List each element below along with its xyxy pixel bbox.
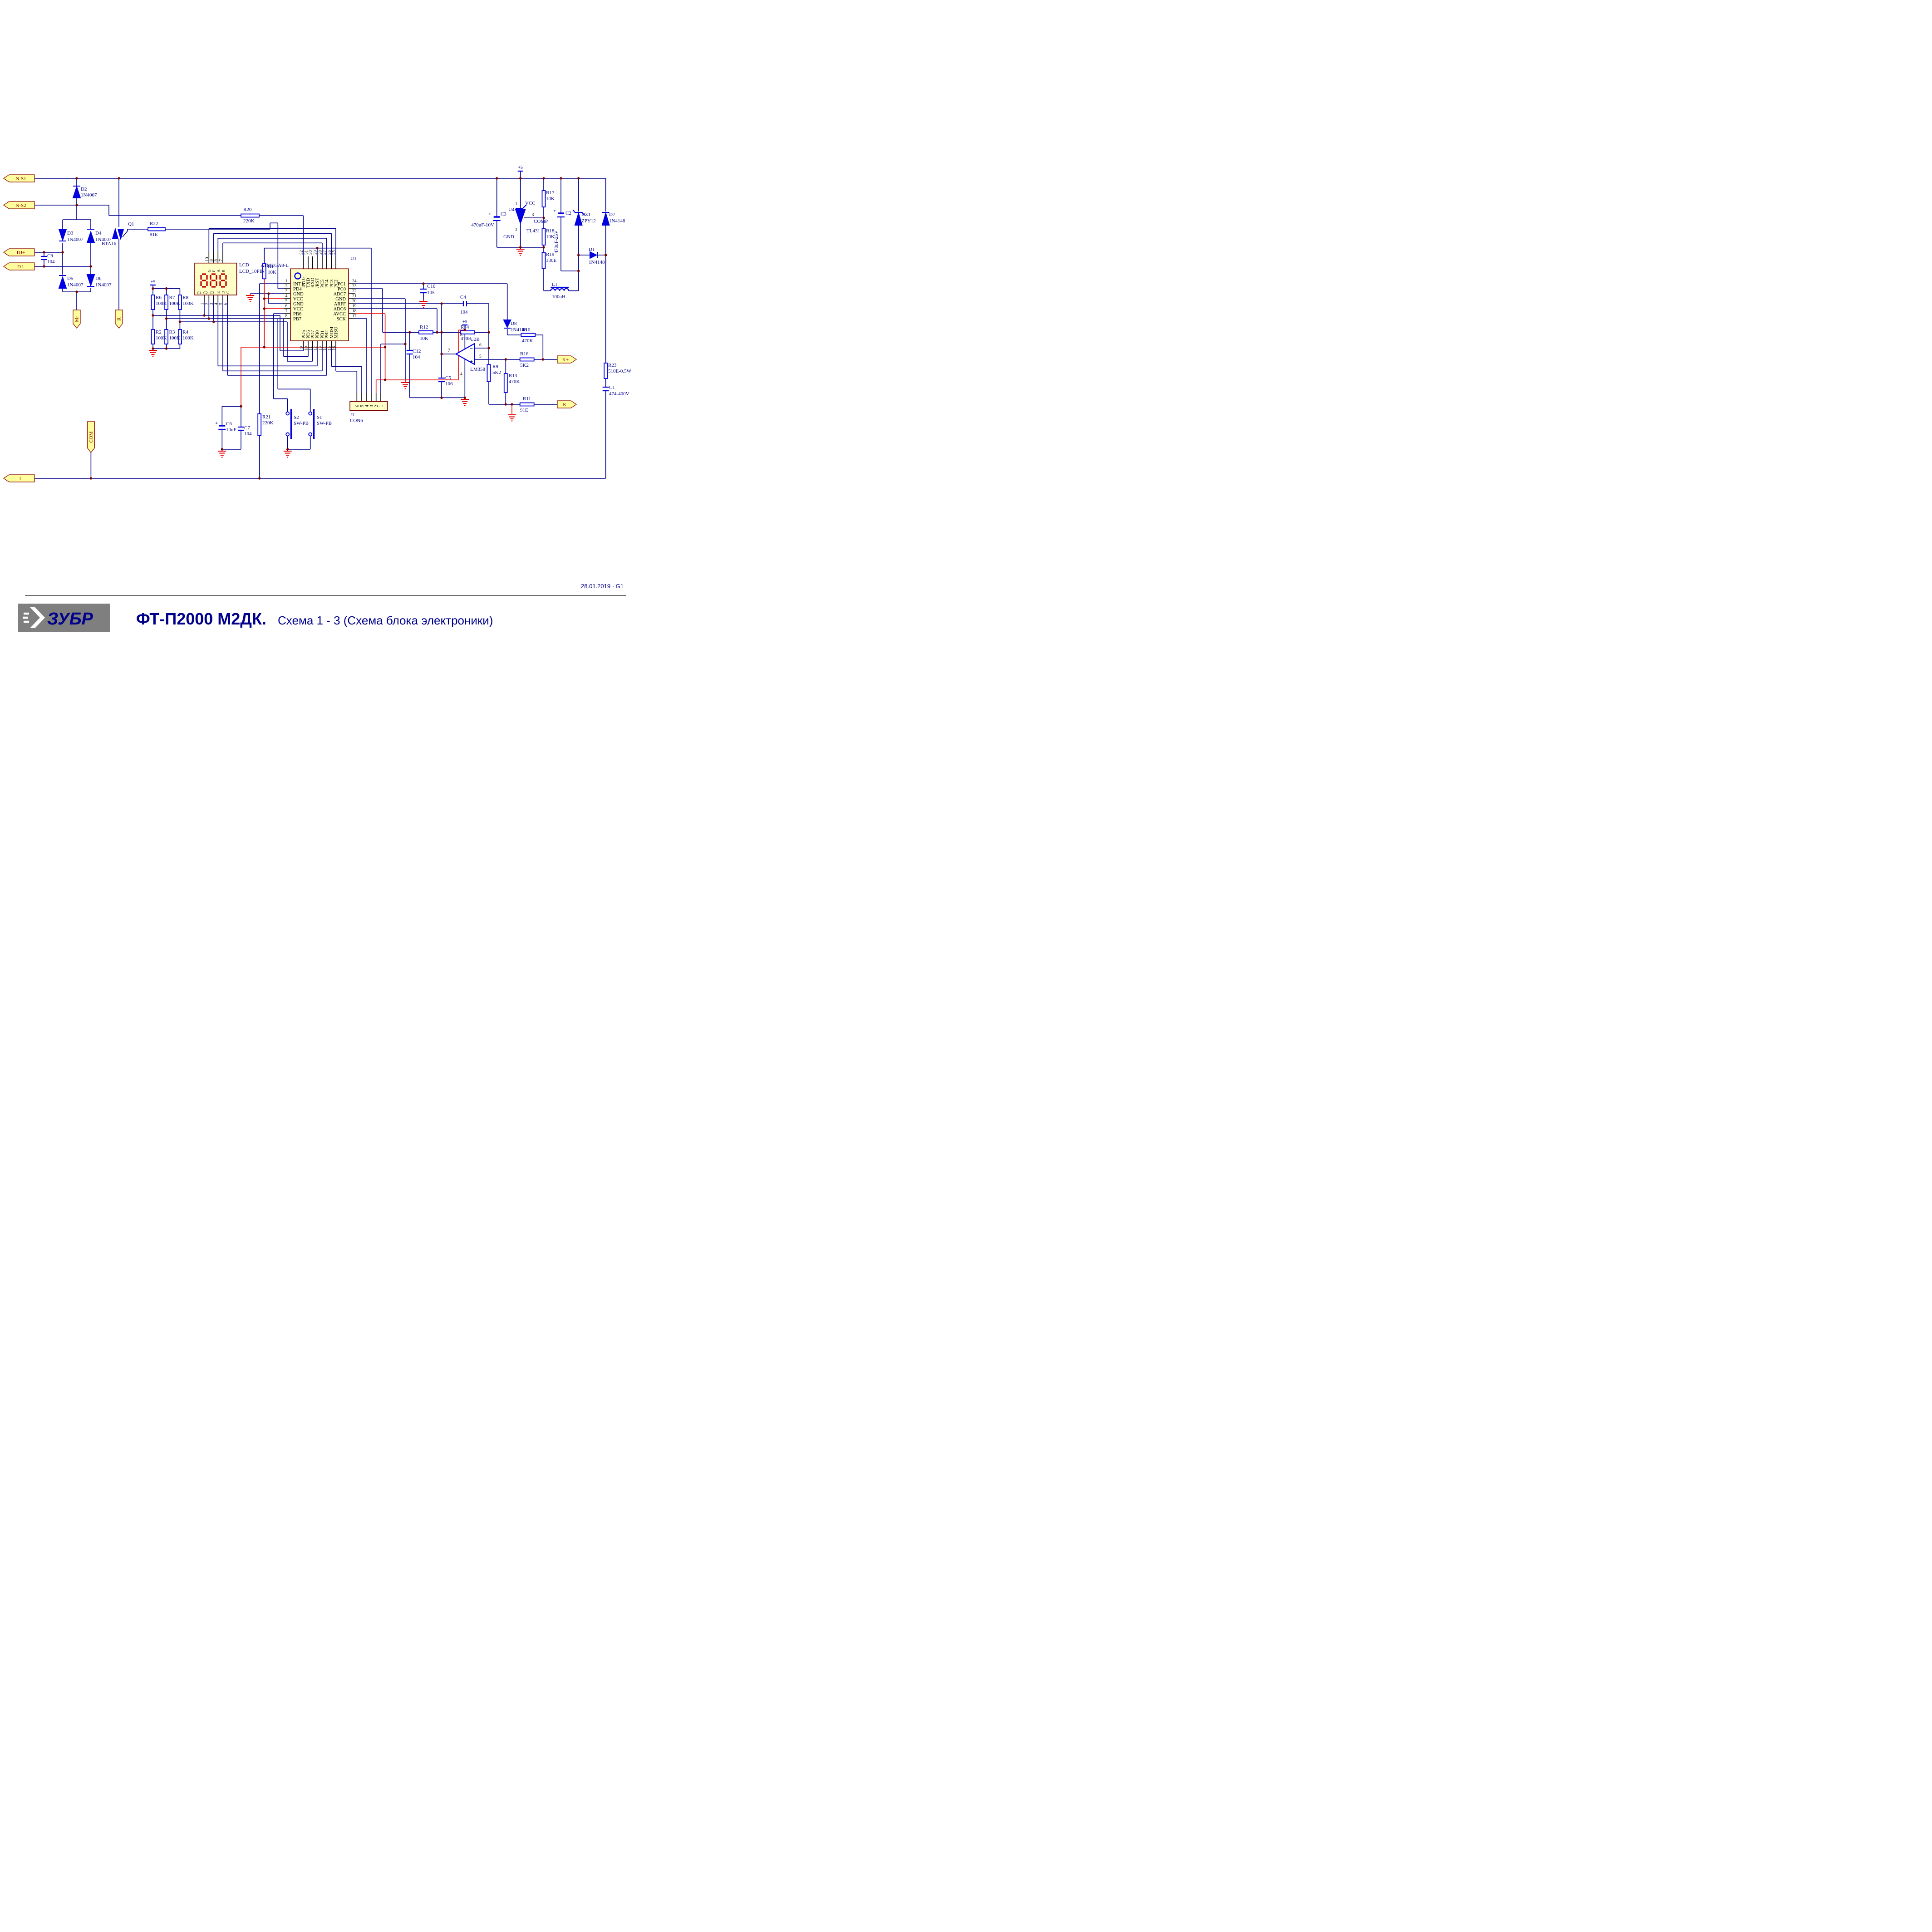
svg-text:4: 4	[285, 294, 288, 299]
svg-text:LCD_10PIN: LCD_10PIN	[239, 269, 265, 274]
svg-text:100K: 100K	[156, 335, 167, 341]
svg-text:R23: R23	[608, 363, 617, 368]
svg-text:2: 2	[205, 303, 210, 305]
svg-text:104: 104	[413, 354, 420, 360]
svg-text:C10: C10	[427, 284, 436, 289]
svg-text:470K: 470K	[509, 379, 520, 384]
svg-text:VCC: VCC	[293, 307, 303, 312]
svg-text:R19: R19	[546, 252, 555, 257]
svg-text:32: 32	[300, 250, 304, 255]
svg-text:PD5: PD5	[301, 330, 306, 339]
svg-text:ATMEGA8-L: ATMEGA8-L	[261, 263, 289, 268]
svg-text:D7: D7	[609, 212, 615, 217]
svg-text:15: 15	[328, 346, 332, 351]
svg-text:D2: D2	[81, 187, 87, 192]
svg-text:Q1: Q1	[128, 221, 134, 227]
u4-tl431: U4 TL431 1 VCC 2 GND 3 COMP	[503, 201, 548, 240]
svg-text:7: 7	[219, 259, 224, 261]
plus5-label: +5	[462, 320, 467, 324]
svg-text:5: 5	[219, 303, 224, 305]
svg-text:C5: C5	[445, 375, 451, 381]
svg-text:R6: R6	[156, 295, 162, 300]
svg-text:3: 3	[285, 289, 288, 294]
svg-text:510E-0.5W: 510E-0.5W	[608, 369, 632, 374]
svg-text:BTA16: BTA16	[102, 241, 117, 246]
svg-text:D4: D4	[95, 231, 102, 236]
schematic-canvas: +5 +5 +5	[0, 0, 644, 644]
resistors	[148, 191, 607, 436]
svg-text:D3: D3	[67, 231, 74, 236]
svg-text:+: +	[488, 211, 491, 217]
flag-mr-label: Mr	[74, 316, 80, 322]
svg-text:19: 19	[352, 304, 357, 309]
svg-text:106: 106	[445, 381, 453, 387]
svg-text:91E: 91E	[520, 408, 528, 413]
plus5-label: +5	[151, 280, 156, 285]
svg-text:TL431: TL431	[526, 228, 540, 234]
svg-text:+: +	[215, 421, 218, 426]
svg-text:+: +	[553, 208, 556, 214]
svg-text:18: 18	[352, 309, 357, 314]
svg-text:1: 1	[285, 279, 288, 284]
svg-text:R4: R4	[182, 329, 188, 335]
svg-text:R16: R16	[520, 351, 529, 357]
svg-text:R14: R14	[461, 324, 469, 330]
svg-text:8: 8	[285, 314, 288, 319]
svg-text:100K: 100K	[169, 335, 181, 341]
svg-text:5: 5	[360, 405, 365, 407]
svg-text:10K: 10K	[268, 270, 276, 275]
svg-text:1N4007: 1N4007	[81, 192, 97, 198]
svg-text:CON6: CON6	[350, 418, 363, 423]
svg-text:GND: GND	[293, 292, 304, 297]
svg-text:L1: L1	[552, 282, 557, 287]
flag-kp-label: K+	[562, 357, 569, 363]
date-revision: 28.01.2019 · G1	[581, 583, 624, 590]
svg-text:ADC6: ADC6	[334, 307, 346, 312]
svg-text:6: 6	[285, 304, 288, 309]
svg-text:R2: R2	[156, 329, 162, 335]
svg-text:PC0: PC0	[338, 287, 346, 292]
svg-text:105: 105	[427, 290, 435, 295]
svg-text:3: 3	[370, 405, 374, 407]
svg-text:220K: 220K	[262, 420, 274, 426]
svg-text:GND: GND	[503, 234, 514, 240]
svg-text:31: 31	[305, 250, 309, 255]
svg-text:8: 8	[460, 333, 462, 338]
svg-text:AVCC: AVCC	[333, 312, 346, 317]
svg-text:104: 104	[47, 259, 55, 265]
svg-text:R9: R9	[492, 364, 498, 369]
svg-text:C12: C12	[413, 349, 421, 354]
svg-text:2: 2	[285, 284, 288, 289]
svg-text:PC1: PC1	[338, 282, 346, 287]
flag-djp-label: DJ+	[17, 250, 25, 256]
svg-text:C6: C6	[226, 421, 232, 427]
svg-text:17: 17	[352, 314, 357, 319]
svg-text:VCC: VCC	[293, 297, 303, 302]
svg-text:1: 1	[515, 202, 517, 206]
svg-text:2: 2	[374, 405, 379, 407]
svg-text:R18: R18	[546, 228, 555, 234]
svg-text:12: 12	[314, 346, 318, 351]
svg-text:100K: 100K	[182, 335, 194, 341]
svg-text:R12: R12	[420, 324, 428, 330]
svg-text:1N4007: 1N4007	[95, 282, 112, 288]
flag-com-label: COM	[88, 431, 94, 442]
svg-text:LM358: LM358	[470, 367, 486, 372]
svg-text:26: 26	[328, 250, 332, 255]
svg-text:R17: R17	[546, 190, 555, 196]
svg-text:11: 11	[309, 346, 313, 350]
svg-text:GND: GND	[293, 302, 304, 307]
svg-text:R3: R3	[169, 329, 175, 335]
svg-text:D1: D1	[589, 247, 595, 252]
svg-text:C9: C9	[47, 253, 53, 259]
brand-name: ЗУБР	[47, 610, 93, 629]
svg-text:J1: J1	[350, 412, 354, 418]
svg-text:9: 9	[210, 259, 214, 261]
svg-text:100K: 100K	[182, 301, 194, 306]
svg-text:+: +	[470, 358, 473, 365]
svg-text:1N4007: 1N4007	[67, 282, 84, 288]
svg-text:A: A	[216, 269, 221, 272]
svg-text:S2: S2	[294, 415, 299, 420]
svg-text:D8: D8	[511, 321, 517, 326]
svg-text:10uF: 10uF	[226, 427, 236, 433]
svg-text:S1: S1	[317, 415, 322, 420]
svg-text:−: −	[470, 345, 473, 352]
svg-text:/RST: /RST	[315, 277, 320, 288]
svg-text:PD4: PD4	[293, 287, 302, 292]
svg-text:SW-PB: SW-PB	[294, 421, 309, 426]
svg-text:21: 21	[352, 294, 357, 299]
svg-text:10K: 10K	[546, 234, 555, 240]
svg-text:C7: C7	[244, 425, 250, 431]
svg-text:330E: 330E	[546, 258, 557, 263]
svg-text:474-400V: 474-400V	[609, 391, 629, 397]
svg-text:ADC7: ADC7	[334, 292, 346, 297]
svg-text:104: 104	[244, 431, 252, 437]
svg-text:3: 3	[210, 303, 214, 305]
svg-text:C2: C2	[203, 290, 208, 295]
svg-text:6: 6	[355, 405, 360, 407]
svg-text:30: 30	[309, 250, 313, 255]
svg-text:ARFF: ARFF	[334, 302, 346, 307]
svg-text:R20: R20	[243, 207, 252, 212]
plus5-label: +5	[518, 165, 523, 170]
svg-text:6: 6	[479, 343, 482, 348]
svg-text:DZ1: DZ1	[581, 212, 590, 217]
flag-ns1-label: N-S1	[15, 176, 26, 182]
svg-text:1N4007: 1N4007	[67, 237, 84, 242]
svg-text:6: 6	[224, 303, 228, 305]
svg-text:104: 104	[460, 310, 468, 315]
svg-text:C1: C1	[609, 385, 615, 390]
svg-text:D5: D5	[67, 276, 74, 281]
svg-text:220K: 220K	[243, 218, 255, 224]
flag-djm-label: DJ-	[17, 264, 25, 270]
svg-text:100K: 100K	[156, 301, 167, 306]
svg-text:16: 16	[332, 346, 337, 351]
svg-text:8: 8	[214, 259, 219, 261]
svg-text:29: 29	[314, 250, 318, 255]
svg-text:470K: 470K	[522, 338, 533, 344]
svg-text:28: 28	[319, 250, 323, 255]
svg-text:1: 1	[379, 405, 384, 407]
svg-text:91E: 91E	[150, 232, 158, 237]
svg-text:7: 7	[448, 349, 450, 353]
inductor	[551, 287, 569, 291]
svg-text:5K2: 5K2	[492, 370, 501, 375]
svg-text:ZPY12: ZPY12	[581, 218, 596, 224]
svg-text:PB7: PB7	[293, 317, 301, 322]
schematic-page: +5 +5 +5	[0, 0, 644, 644]
svg-text:9: 9	[300, 346, 304, 349]
svg-text:C2: C2	[565, 211, 571, 216]
svg-text:INT1: INT1	[293, 282, 304, 287]
svg-text:PB0: PB0	[315, 330, 320, 339]
svg-text:5K2: 5K2	[520, 363, 529, 368]
svg-text:25: 25	[332, 250, 337, 255]
svg-text:10: 10	[305, 346, 309, 351]
svg-text:VCC: VCC	[525, 201, 536, 206]
svg-text:C1: C1	[197, 290, 202, 295]
svg-text:F: F	[211, 270, 216, 272]
title-block: 28.01.2019 · G1 ЗУБР ФТ-П2000 М2ДК. Схем…	[18, 583, 626, 632]
svg-text:R10: R10	[522, 327, 531, 333]
svg-text:7: 7	[285, 309, 288, 314]
svg-text:E: E	[216, 291, 221, 294]
svg-text:R7: R7	[169, 295, 175, 300]
svg-text:U1: U1	[350, 256, 356, 261]
svg-text:20: 20	[352, 299, 357, 304]
svg-text:1N4148: 1N4148	[589, 260, 605, 265]
svg-text:R21: R21	[262, 414, 270, 420]
svg-text:R8: R8	[182, 295, 188, 300]
svg-text:14: 14	[323, 346, 327, 351]
svg-text:22: 22	[352, 289, 357, 294]
svg-text:5: 5	[479, 354, 482, 359]
svg-text:GND: GND	[335, 297, 346, 302]
svg-text:2: 2	[515, 228, 517, 232]
svg-text:470uF-10V: 470uF-10V	[471, 222, 494, 228]
svg-text:4: 4	[365, 405, 370, 407]
svg-text:C: C	[226, 291, 230, 294]
svg-text:10K: 10K	[420, 336, 428, 341]
svg-text:4: 4	[214, 303, 219, 305]
svg-text:C3: C3	[501, 211, 506, 217]
svg-text:1N4148: 1N4148	[609, 218, 625, 224]
svg-text:23: 23	[352, 284, 357, 289]
svg-text:R13: R13	[509, 373, 517, 379]
svg-text:24: 24	[352, 279, 357, 284]
svg-text:3: 3	[532, 213, 534, 217]
svg-text:U2B: U2B	[470, 337, 480, 342]
flag-r-label: R	[117, 317, 122, 321]
schematic-subtitle: Схема 1 - 3 (Схема блока электроники)	[278, 614, 493, 627]
schematic-model: ФТ-П2000 М2ДК.	[136, 610, 266, 628]
svg-text:100K: 100K	[169, 301, 181, 306]
svg-text:10K: 10K	[546, 196, 555, 202]
svg-text:SW-PB: SW-PB	[317, 421, 332, 426]
svg-text:1: 1	[201, 303, 205, 305]
svg-text:R22: R22	[150, 221, 158, 226]
svg-text:PB2: PB2	[324, 330, 329, 339]
svg-text:5: 5	[285, 299, 288, 304]
svg-text:LCD: LCD	[239, 262, 249, 268]
svg-text:10: 10	[205, 257, 210, 261]
svg-text:R11: R11	[523, 396, 531, 402]
flag-l-label: L	[20, 476, 23, 482]
flag-ns2-label: N-S2	[15, 203, 26, 208]
svg-text:C4: C4	[460, 295, 466, 300]
svg-text:G: G	[207, 270, 211, 272]
svg-text:4: 4	[460, 372, 462, 377]
svg-text:13: 13	[319, 346, 323, 351]
svg-text:27: 27	[323, 250, 327, 255]
svg-text:C3: C3	[210, 290, 214, 295]
svg-text:100uH: 100uH	[552, 294, 565, 300]
svg-text:D: D	[221, 291, 226, 294]
svg-text:U4: U4	[508, 207, 515, 212]
svg-text:PC4: PC4	[324, 279, 329, 288]
svg-text:SCK: SCK	[337, 317, 346, 322]
svg-text:MISO: MISO	[334, 326, 339, 339]
svg-text:D6: D6	[95, 276, 102, 281]
svg-text:PB6: PB6	[293, 312, 301, 317]
svg-text:B: B	[221, 270, 226, 272]
svg-text:COMP: COMP	[534, 219, 548, 224]
flag-km-label: K-	[563, 402, 568, 408]
